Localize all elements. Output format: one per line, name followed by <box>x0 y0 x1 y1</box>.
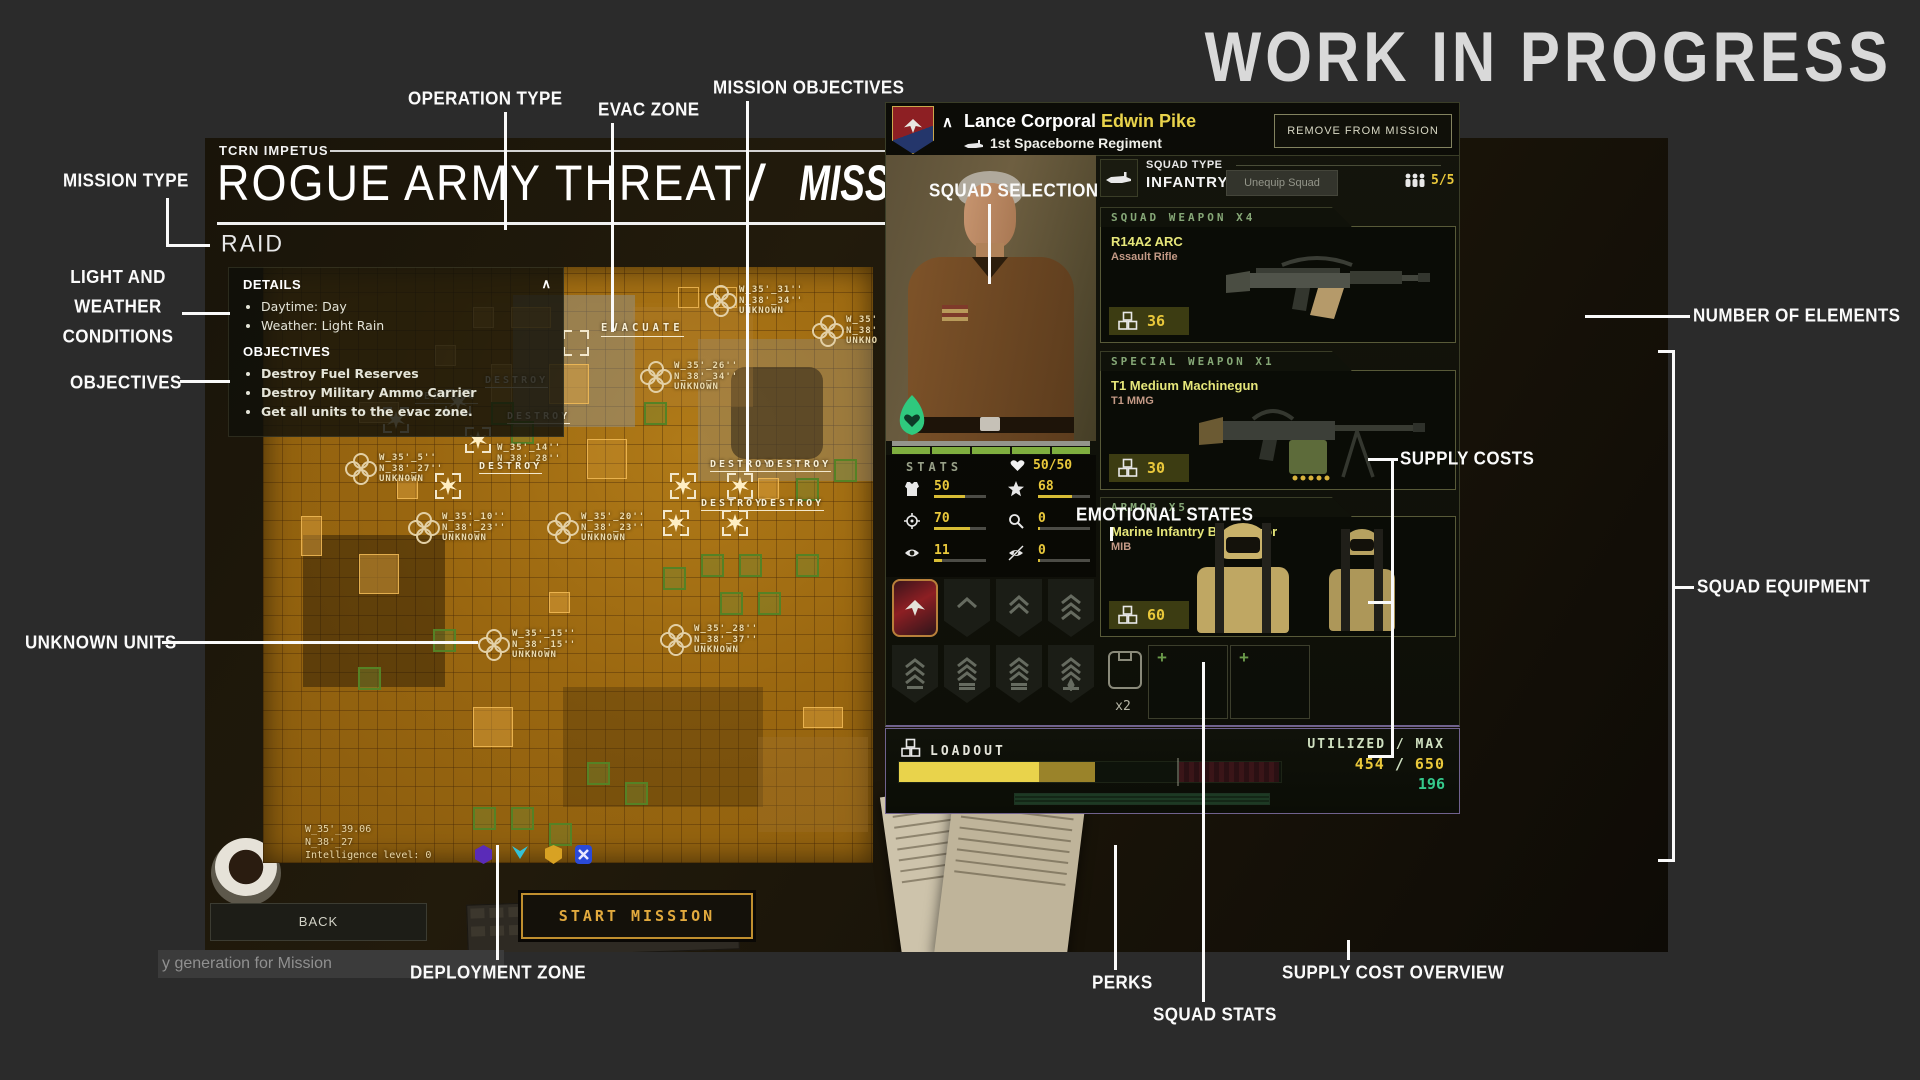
details-list: Daytime: Day Weather: Light Rain <box>247 297 563 335</box>
special-cost-value: 30 <box>1147 459 1165 477</box>
weapon-cost-value: 36 <box>1147 312 1165 330</box>
supply-cost-chip: 30 <box>1109 454 1189 482</box>
perk-badge-regiment[interactable] <box>892 579 938 637</box>
unknown-unit-marker[interactable]: W_35'_15''N_38'_15''UNKNOWN <box>478 629 510 666</box>
annotation-emotional-states: EMOTIONAL STATES <box>1076 504 1253 526</box>
annotation-unknown-units: UNKNOWN UNITS <box>25 632 177 654</box>
screenshot-root: { "watermark": "WORK IN PROGRESS", "colo… <box>0 0 1920 1080</box>
unknown-unit-marker[interactable]: W_35'_10''N_38'_23''UNKNOWN <box>408 512 440 549</box>
loadout-panel: LOADOUT UTILIZED / MAX 454 / 650 196 <box>885 728 1460 814</box>
annotation-perks: PERKS <box>1092 972 1153 994</box>
stats-panel: STATS 50/50 50 70 11 68 0 0 <box>886 455 1096 577</box>
perk-badge[interactable] <box>944 645 990 703</box>
squad-marker-icon[interactable] <box>575 845 592 864</box>
mission-title-text: ROGUE ARMY THREAT <box>217 154 744 211</box>
explosion-icon <box>667 514 685 532</box>
destroy-bracket-icon <box>663 510 689 536</box>
vest-icon <box>904 481 920 497</box>
unknown-unit-marker[interactable]: W_35'_5''N_38'_27''UNKNOWN <box>345 453 377 490</box>
squad-type-value: INFANTRY <box>1146 174 1228 191</box>
unknown-unit-marker[interactable]: W_35'N_38'UNKNO <box>812 315 844 352</box>
perk-badge[interactable] <box>996 645 1042 703</box>
destroy-bracket-icon <box>435 473 461 499</box>
clover-icon <box>640 361 672 393</box>
rifle-icon <box>1106 170 1132 186</box>
explosion-icon <box>439 477 457 495</box>
explosion-icon <box>726 514 744 532</box>
details-header: DETAILS <box>243 277 563 292</box>
rifle-icon <box>964 138 984 150</box>
member-header: ∧ Lance Corporal Edwin Pike 1st Spacebor… <box>886 103 1459 156</box>
annotation-light-weather: LIGHT AND WEATHER CONDITIONS <box>58 262 178 351</box>
special-weapon-header: SPECIAL WEAPON X1 <box>1100 351 1352 371</box>
regiment-emblem-icon <box>892 106 934 154</box>
start-mission-button[interactable]: START MISSION <box>521 893 753 939</box>
armor-cost-value: 60 <box>1147 606 1165 624</box>
supply-cost-chip: 36 <box>1109 307 1189 335</box>
stat-experience-value: 68 <box>1038 479 1054 494</box>
ribbon-bar <box>942 305 968 321</box>
squad-type-icon-box <box>1100 159 1138 197</box>
map-coordinates: W_35'_39.06 N_38'_27 Intelligence level:… <box>305 823 431 862</box>
perk-badge[interactable] <box>996 579 1042 637</box>
special-weapon-panel[interactable]: SPECIAL WEAPON X1 T1 Medium Machinegun T… <box>1100 370 1456 490</box>
max-value: 650 <box>1415 755 1445 773</box>
annotation-mission-type: MISSION TYPE <box>63 170 189 192</box>
collapse-chevron-icon[interactable]: ∧ <box>541 276 551 292</box>
unknown-unit-marker[interactable]: W_35'_20''N_38'_23''UNKNOWN <box>547 512 579 549</box>
remove-from-mission-button[interactable]: REMOVE FROM MISSION <box>1274 114 1452 148</box>
evac-bracket-icon <box>563 330 589 356</box>
destroy-bracket-icon <box>727 473 753 499</box>
stat-detection-value: 0 <box>1038 511 1046 526</box>
remaining-value: 196 <box>1307 775 1445 793</box>
loadout-capacity-bar <box>898 761 1282 783</box>
member-rank: Lance Corporal <box>964 111 1096 131</box>
armor-subtitle: MIB <box>1111 541 1131 553</box>
annotation-mission-objectives: MISSION OBJECTIVES <box>713 77 904 99</box>
equipment-slot-empty[interactable]: + <box>1230 645 1310 719</box>
hp-value: 50/50 <box>1033 458 1072 473</box>
stat-vision-value: 11 <box>934 543 950 558</box>
magnifier-icon <box>1008 513 1024 529</box>
clover-icon <box>478 629 510 661</box>
utility-slot-icon: x2 <box>1108 651 1142 721</box>
perk-badge[interactable] <box>944 579 990 637</box>
paper-notebook <box>933 795 1084 952</box>
armor-panel[interactable]: ARMOR X5 Marine Infantry Bodyarmor MIB 6… <box>1100 516 1456 637</box>
annotation-number-of-elements: NUMBER OF ELEMENTS <box>1693 305 1900 327</box>
explosion-icon <box>674 477 692 495</box>
eye-icon <box>904 545 920 561</box>
stat-accuracy-value: 70 <box>934 511 950 526</box>
armor-figure-large <box>1197 523 1289 633</box>
destroy-label: DESTROY <box>479 461 542 474</box>
explosion-icon <box>731 477 749 495</box>
unequip-squad-button[interactable]: Unequip Squad <box>1226 170 1338 196</box>
weapon-subtitle: Assault Rifle <box>1111 251 1178 263</box>
special-weapon-name: T1 Medium Machinegun <box>1111 378 1258 393</box>
clover-icon <box>345 453 377 485</box>
member-name: Edwin Pike <box>1101 111 1196 131</box>
detail-item: Weather: Light Rain <box>261 316 563 335</box>
map-dark-patch <box>563 687 763 807</box>
collapse-chevron-icon[interactable]: ∧ <box>942 113 953 131</box>
shield-badge-icon[interactable] <box>545 845 562 864</box>
loadout-header: LOADOUT <box>930 744 1006 759</box>
supply-cubes-icon <box>900 738 922 758</box>
squad-type-label: SQUAD TYPE <box>1146 159 1223 171</box>
member-regiment: 1st Spaceborne Regiment <box>990 135 1162 151</box>
utilized-max-label: UTILIZED / MAX <box>1307 737 1445 752</box>
annotation-supply-cost-overview: SUPPLY COST OVERVIEW <box>1282 962 1504 984</box>
people-icon <box>1404 173 1426 187</box>
special-weapon-subtitle: T1 MMG <box>1111 395 1154 407</box>
supply-overview-bar <box>1014 793 1270 805</box>
bird-emblem-icon[interactable] <box>511 843 528 862</box>
plus-icon: + <box>1239 648 1249 668</box>
annotation-objectives: OBJECTIVES <box>70 372 182 394</box>
supply-cubes-icon <box>1117 458 1139 478</box>
annotation-squad-equipment: SQUAD EQUIPMENT <box>1697 576 1870 598</box>
annotation-squad-stats: SQUAD STATS <box>1153 1004 1277 1026</box>
destroy-label: DESTROY <box>710 459 773 472</box>
stat-armor-value: 50 <box>934 479 950 494</box>
destroy-label: DESTROY <box>768 459 831 472</box>
destroy-bracket-icon <box>722 510 748 536</box>
perk-badge[interactable] <box>1048 579 1094 637</box>
faction-badge-icon[interactable] <box>475 845 492 864</box>
elements-count: 5/5 <box>1431 173 1454 188</box>
assault-rifle-image <box>1222 245 1447 328</box>
clover-icon <box>705 285 737 317</box>
equipment-slot-empty[interactable]: + <box>1148 645 1228 719</box>
supply-cubes-icon <box>1117 605 1139 625</box>
weapon-name: R14A2 ARC <box>1111 234 1183 249</box>
annotation-supply-costs: SUPPLY COSTS <box>1400 448 1534 470</box>
mission-details-panel: ∧ DETAILS Daytime: Day Weather: Light Ra… <box>228 267 564 437</box>
clover-icon <box>408 512 440 544</box>
star-icon <box>1008 481 1024 497</box>
stats-header: STATS <box>906 460 962 474</box>
unknown-unit-marker[interactable]: W_35'_31''N_38'_34''UNKNOWN <box>705 285 737 322</box>
unknown-unit-marker[interactable]: W_35'_28''N_38'_37''UNKNOWN <box>660 624 692 661</box>
objective-item: Destroy Military Ammo Carrier <box>261 383 563 402</box>
detail-item: Daytime: Day <box>261 297 563 316</box>
heart-icon <box>1010 458 1025 472</box>
perk-badge[interactable] <box>892 645 938 703</box>
title-underline <box>217 222 943 225</box>
unknown-unit-marker[interactable]: W_35'_26''N_38'_34''UNKNOWN <box>640 361 672 398</box>
plus-icon: + <box>1157 648 1167 668</box>
annotation-squad-selection: SQUAD SELECTION <box>929 180 1098 202</box>
health-bar <box>892 441 1090 454</box>
clover-icon <box>812 315 844 347</box>
objective-item: Destroy Fuel Reserves <box>261 364 563 383</box>
squad-weapon-header: SQUAD WEAPON X4 <box>1100 207 1352 227</box>
squad-weapon-panel[interactable]: SQUAD WEAPON X4 R14A2 ARC Assault Rifle … <box>1100 226 1456 343</box>
back-button[interactable]: BACK <box>210 903 427 941</box>
title-divider: / <box>750 154 765 211</box>
clover-icon <box>660 624 692 656</box>
destroy-label: DESTROY <box>761 498 824 511</box>
objectives-list: Destroy Fuel Reserves Destroy Military A… <box>247 364 563 421</box>
title-rule <box>330 150 940 152</box>
eye-slash-icon <box>1008 545 1024 561</box>
supply-cubes-icon <box>1117 311 1139 331</box>
map-light-patch <box>758 737 868 832</box>
perk-badge[interactable] <box>1048 645 1094 703</box>
utility-multiplier: x2 <box>1108 699 1138 714</box>
emotional-state-icon[interactable] <box>892 393 932 444</box>
annotation-deployment-zone: DEPLOYMENT ZONE <box>410 962 586 984</box>
annotation-operation-type: OPERATION TYPE <box>408 88 563 110</box>
armor-figure-small <box>1329 529 1395 631</box>
squad-type-rule <box>1236 165 1441 166</box>
supply-cost-chip: 60 <box>1109 601 1189 629</box>
objective-item: Get all units to the evac zone. <box>261 402 563 421</box>
crosshair-icon <box>904 513 920 529</box>
mission-type-value: RAID <box>221 229 284 257</box>
destroy-bracket-icon <box>670 473 696 499</box>
annotation-evac-zone: EVAC ZONE <box>598 99 700 121</box>
machinegun-image <box>1197 397 1447 488</box>
objectives-header: OBJECTIVES <box>243 344 563 359</box>
work-in-progress-watermark: WORK IN PROGRESS <box>1205 16 1892 97</box>
clover-icon <box>547 512 579 544</box>
stat-stealth-value: 0 <box>1038 543 1046 558</box>
